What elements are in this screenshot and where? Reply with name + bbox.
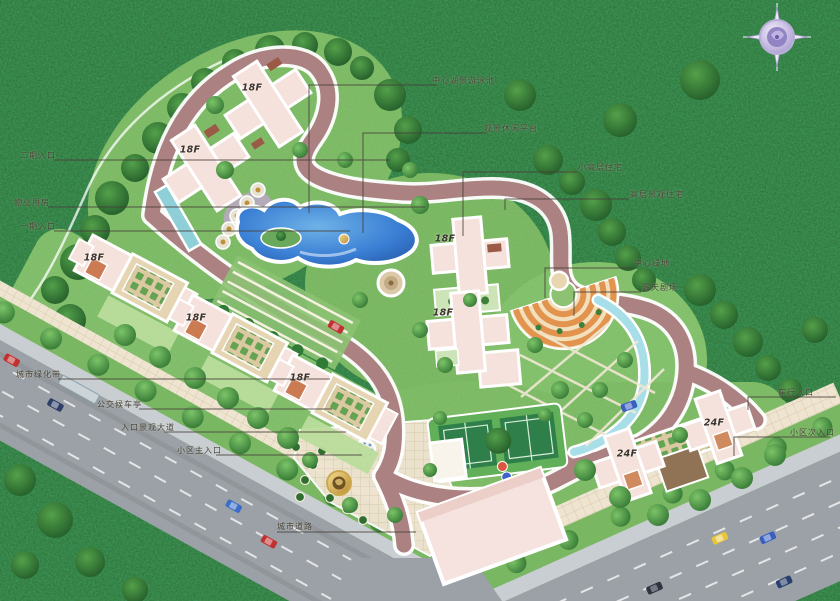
circular-plaza: [378, 270, 404, 296]
site-plan-graphic: [0, 0, 840, 601]
site-plan-canvas: 二期入口 物业用房 一期入口 中心湖景游泳池 观景休闲平台 小高层住宅 高层景观…: [0, 0, 840, 601]
